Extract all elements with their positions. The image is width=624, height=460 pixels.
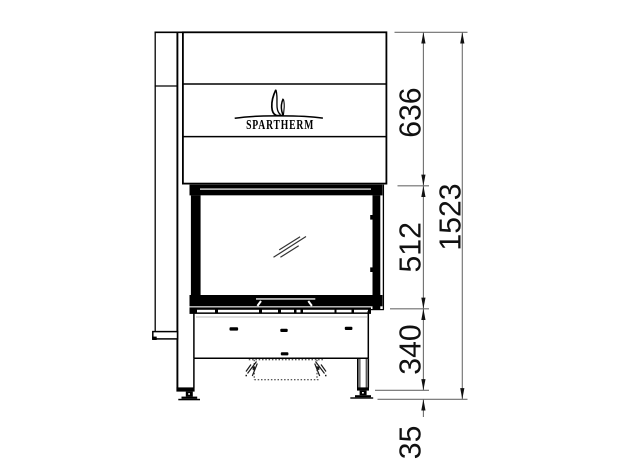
svg-text:636: 636 <box>395 87 428 137</box>
svg-text:1523: 1523 <box>435 183 468 250</box>
svg-text:35: 35 <box>394 426 427 460</box>
svg-text:SPARTHERM: SPARTHERM <box>246 116 314 132</box>
svg-text:340: 340 <box>395 324 428 374</box>
svg-text:512: 512 <box>395 222 428 272</box>
